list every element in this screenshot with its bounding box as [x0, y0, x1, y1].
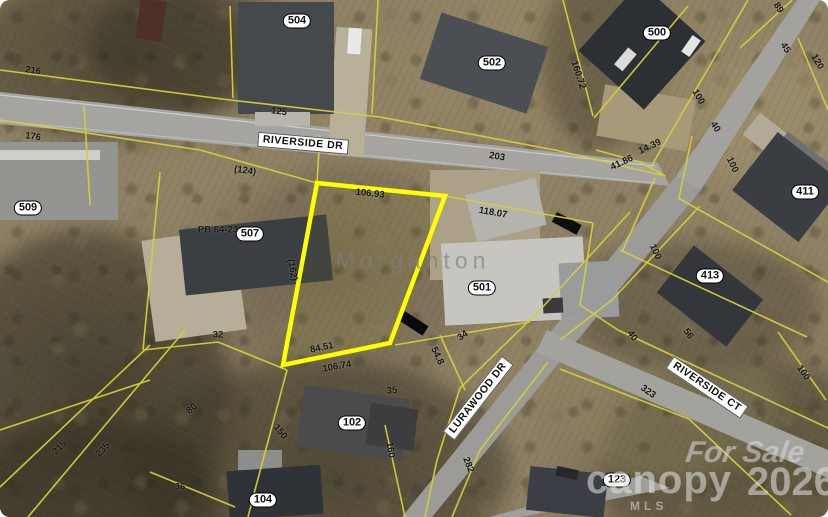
house-411: [732, 132, 828, 242]
house-504: [238, 2, 334, 114]
mls-brand-watermark: canopy: [586, 458, 732, 503]
car: [347, 28, 362, 55]
house-104: [226, 465, 323, 517]
city-watermark: Morganton: [336, 248, 491, 275]
shed-104: [238, 450, 282, 470]
house-501-detail: [543, 297, 564, 313]
dark-vehicle: [399, 311, 428, 335]
house-504-porch: [255, 112, 310, 126]
dark-vehicle: [552, 212, 582, 235]
house-413: [657, 245, 763, 346]
house-102-wing: [365, 403, 418, 451]
house-502: [420, 12, 548, 113]
mls-watermark: MLS: [630, 499, 667, 513]
building: [135, 0, 166, 42]
house-509-roofline: [0, 150, 100, 160]
year-watermark: 2026: [747, 460, 828, 505]
aerial-parcel-map: 504502500509507411413501102104123RIVERSI…: [0, 0, 828, 517]
